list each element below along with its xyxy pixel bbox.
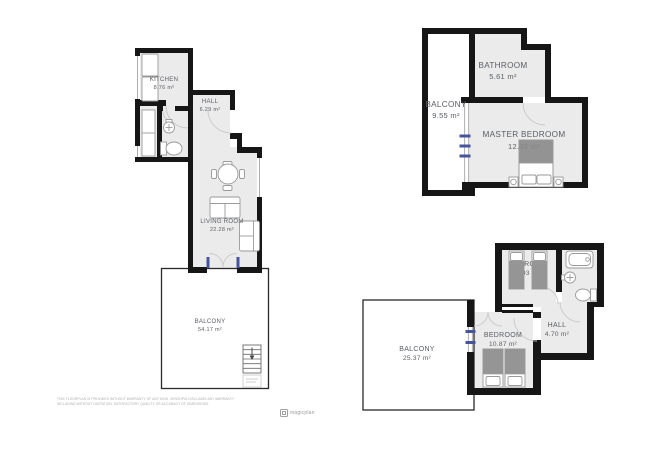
room-label-bathroom-2: BATHROOM — [478, 61, 527, 70]
room-label-master-bedroom: MASTER BEDROOM — [483, 130, 566, 139]
room-area-hall-3: 4.70 m² — [545, 331, 570, 338]
entry-opening — [230, 110, 235, 133]
room-label-balcony-1: BALCONY — [195, 319, 226, 325]
room-area-balcony-2: 9.55 m² — [432, 111, 460, 120]
toilet-icon — [576, 289, 597, 301]
nightstand-right — [554, 177, 563, 187]
double-bed — [519, 140, 553, 187]
armchair — [240, 221, 260, 251]
room-label-hall-3: HALL — [548, 322, 567, 329]
magicplan-logo-icon — [280, 409, 288, 417]
wc-toilet-icon — [161, 142, 183, 155]
floorplan-drawing: KITCHEN 8.76 m² HALL 6.29 m² LIVING ROOM… — [0, 0, 650, 450]
magicplan-logo-text: magicplan — [290, 410, 315, 416]
room-label-kitchen: KITCHEN — [150, 77, 178, 83]
room-area-hall-1: 6.29 m² — [200, 107, 221, 113]
wardrobe — [142, 110, 155, 156]
stairs — [243, 345, 261, 373]
twin-bed — [532, 251, 547, 289]
room-area-balcony-1: 54.17 m² — [198, 327, 222, 333]
room-area-living-room: 22.28 m² — [210, 227, 234, 233]
twin-bed — [505, 349, 525, 387]
room-label-living-room: LIVING ROOM — [200, 219, 243, 225]
disclaimer-text: THIS FLOORPLAN IS PROVIDED WITHOUT WARRA… — [57, 397, 234, 407]
room-label-hall-1: HALL — [202, 99, 219, 105]
stairs-note — [243, 375, 261, 387]
balcony-glazing-2 — [460, 103, 471, 182]
balcony-outlines — [162, 269, 475, 411]
twin-bed — [483, 349, 503, 387]
sofa — [210, 197, 240, 218]
room-label-balcony-3: BALCONY — [399, 346, 435, 353]
room-area-bedroom-3: 10.87 m² — [489, 341, 518, 348]
room-area-bathroom-2: 5.61 m² — [489, 72, 517, 81]
nightstand-left — [509, 177, 518, 187]
twin-bed — [509, 251, 524, 289]
room-area-balcony-3: 25.37 m² — [403, 355, 432, 362]
room-label-balcony-2: BALCONY — [425, 100, 466, 109]
floorplan-sheet: KITCHEN 8.76 m² HALL 6.29 m² LIVING ROOM… — [0, 0, 650, 450]
room-area-kitchen: 8.76 m² — [154, 85, 175, 91]
disclaimer-line-2: INCLUDING WITHOUT LIMITATION, SATISFACTO… — [57, 402, 234, 407]
bathtub-icon — [566, 251, 593, 268]
magicplan-logo: magicplan — [280, 409, 315, 417]
room-label-bedroom-3: BEDROOM — [484, 332, 522, 339]
